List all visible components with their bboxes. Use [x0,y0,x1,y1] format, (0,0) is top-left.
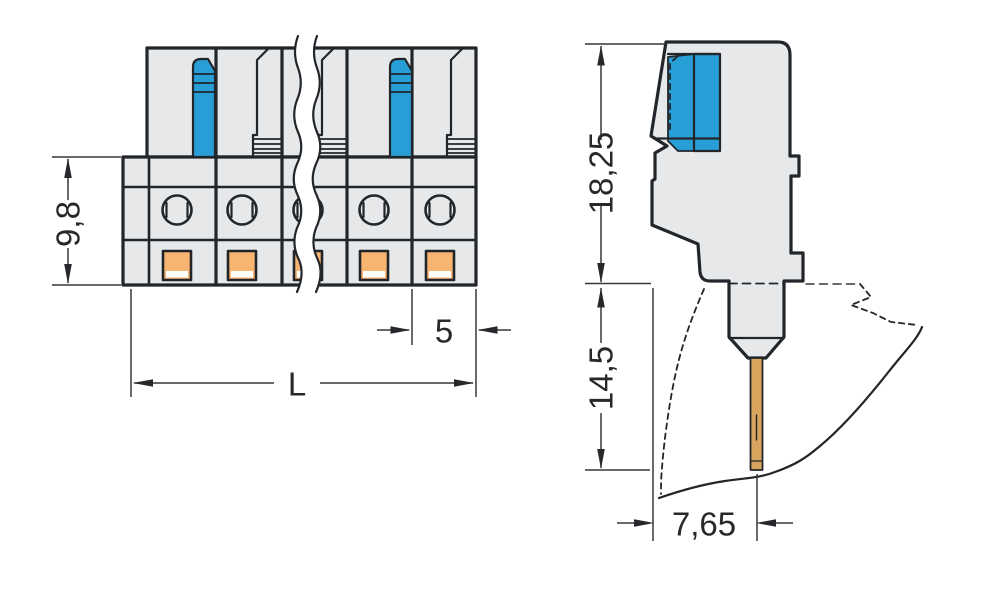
dimension-front-height: 9,8 [50,157,122,285]
locking-lever-front-1 [193,59,215,157]
connector-dimension-drawing: 9,8 5 L [0,0,1000,597]
dimension-side-depth-label: 14,5 [583,346,620,410]
side-view: 18,25 14,5 7,65 [583,42,923,543]
wire-contact-4 [360,251,388,280]
panel-torn-edge [659,327,922,498]
wire-contact-2 [228,251,256,280]
dimension-side-pin-offset-label: 7,65 [672,506,736,543]
wire-contact-1 [163,251,191,280]
dimension-side-height-label: 18,25 [583,132,620,215]
drawing-canvas: 9,8 5 L [0,0,1000,597]
dimension-front-length: L [131,289,474,403]
dimension-front-height-label: 9,8 [50,201,87,247]
dimension-front-pitch: 5 [377,289,511,397]
locking-lever-front-2 [390,59,412,157]
dimension-front-pitch-label: 5 [435,313,453,350]
wire-contact-5 [426,251,454,280]
panel-edge [659,284,922,498]
cavity-circle-5 [426,196,455,225]
cavity-circle-4 [360,196,389,225]
cavity-circle-1 [163,196,192,225]
dimension-side-height: 18,25 [583,44,665,283]
cavity-circle-2 [228,196,257,225]
dimension-front-length-label: L [288,366,306,403]
solder-pin [751,358,763,470]
dimension-side-depth: 14,5 [583,284,652,471]
panel-hole-hidden-edge [661,289,704,494]
front-view: 9,8 5 L [50,36,512,403]
